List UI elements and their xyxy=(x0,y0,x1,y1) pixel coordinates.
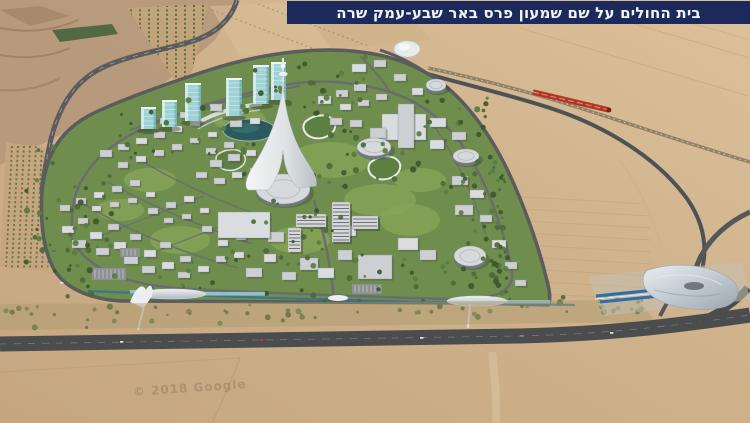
aerial-rendering: © 2018 Google xyxy=(0,0,750,423)
caption-banner: בית החולים על שם שמעון פרס באר שבע-עמק ש… xyxy=(287,1,750,24)
screenshot-frame: © 2018 Google בית החולים על שם שמעון פרס… xyxy=(0,0,750,423)
